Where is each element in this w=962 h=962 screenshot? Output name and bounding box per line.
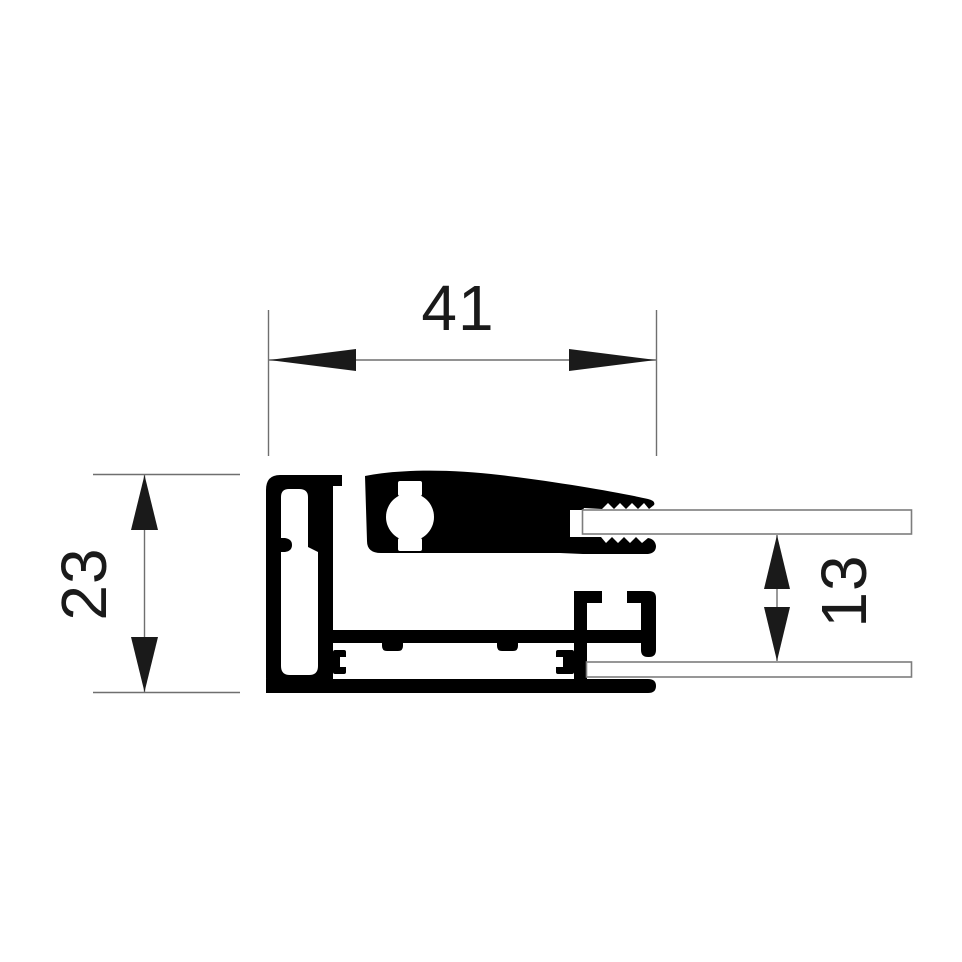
- arrowhead-13-bottom: [764, 607, 790, 661]
- arrowhead-41-right: [569, 349, 656, 371]
- aluminum-profile-body: [266, 471, 656, 693]
- arrowhead-23-bottom: [131, 637, 158, 692]
- arrowhead-41-left: [269, 349, 356, 371]
- clamp-upright: [574, 591, 587, 690]
- clamp-hook-leg: [627, 591, 656, 657]
- bottom-flange: [266, 679, 656, 693]
- middle-web: [318, 630, 655, 643]
- arrowhead-23-top: [131, 475, 158, 530]
- glass-panel-bottom: [587, 662, 912, 677]
- web-nub-right: [497, 641, 518, 651]
- screw-boss-slot-bottom: [398, 538, 422, 551]
- clamp-stub: [587, 591, 602, 603]
- tab-notch-right: [556, 657, 563, 667]
- web-nub-left: [382, 641, 403, 651]
- dimension-label-23: 23: [48, 547, 120, 620]
- profile-technical-drawing: 41 23 13: [0, 0, 962, 962]
- tab-notch-left: [340, 657, 346, 667]
- glass-panel-top: [583, 510, 912, 534]
- arrowhead-13-top: [764, 535, 790, 589]
- screw-boss-hole: [386, 493, 434, 541]
- screw-boss-slot-top: [398, 481, 422, 496]
- drawing-canvas: 41 23 13: [0, 0, 962, 962]
- dimension-labels: 41 23 13: [48, 272, 880, 628]
- dimension-label-13: 13: [808, 554, 880, 627]
- dimension-label-41: 41: [421, 272, 494, 344]
